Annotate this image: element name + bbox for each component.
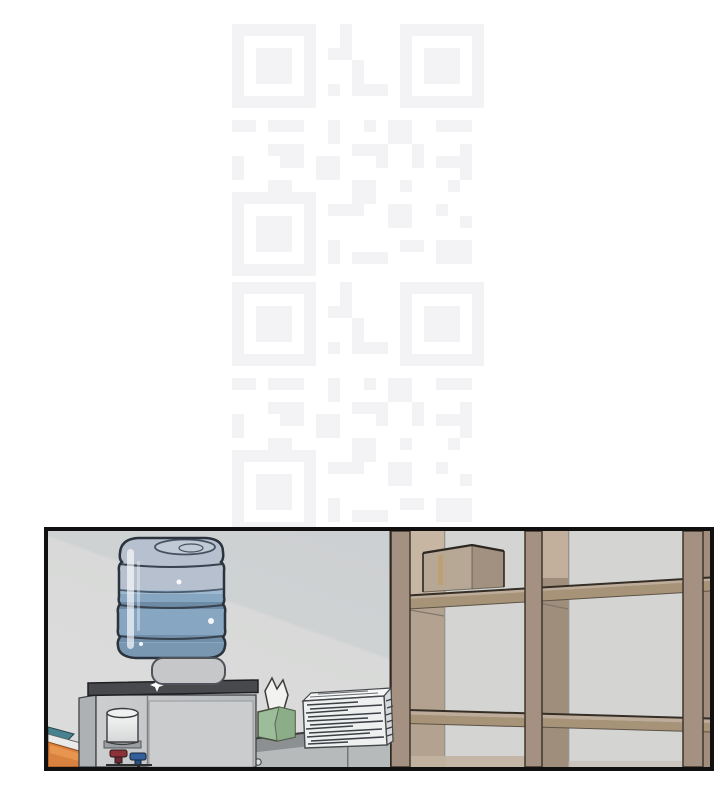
cooler-side xyxy=(79,695,96,767)
comic-panel xyxy=(44,527,714,771)
shelf-post xyxy=(683,531,703,767)
cardboard-box xyxy=(423,545,504,592)
water-bottle xyxy=(113,538,228,660)
shelf-post xyxy=(525,531,542,767)
qr-watermark xyxy=(232,24,487,530)
bottle-pedestal xyxy=(152,658,225,684)
shelf-unit xyxy=(390,531,711,767)
shelf-post xyxy=(391,531,410,767)
paper-stack xyxy=(303,688,393,748)
comic-page xyxy=(0,0,720,800)
cup-dispenser xyxy=(104,709,141,749)
